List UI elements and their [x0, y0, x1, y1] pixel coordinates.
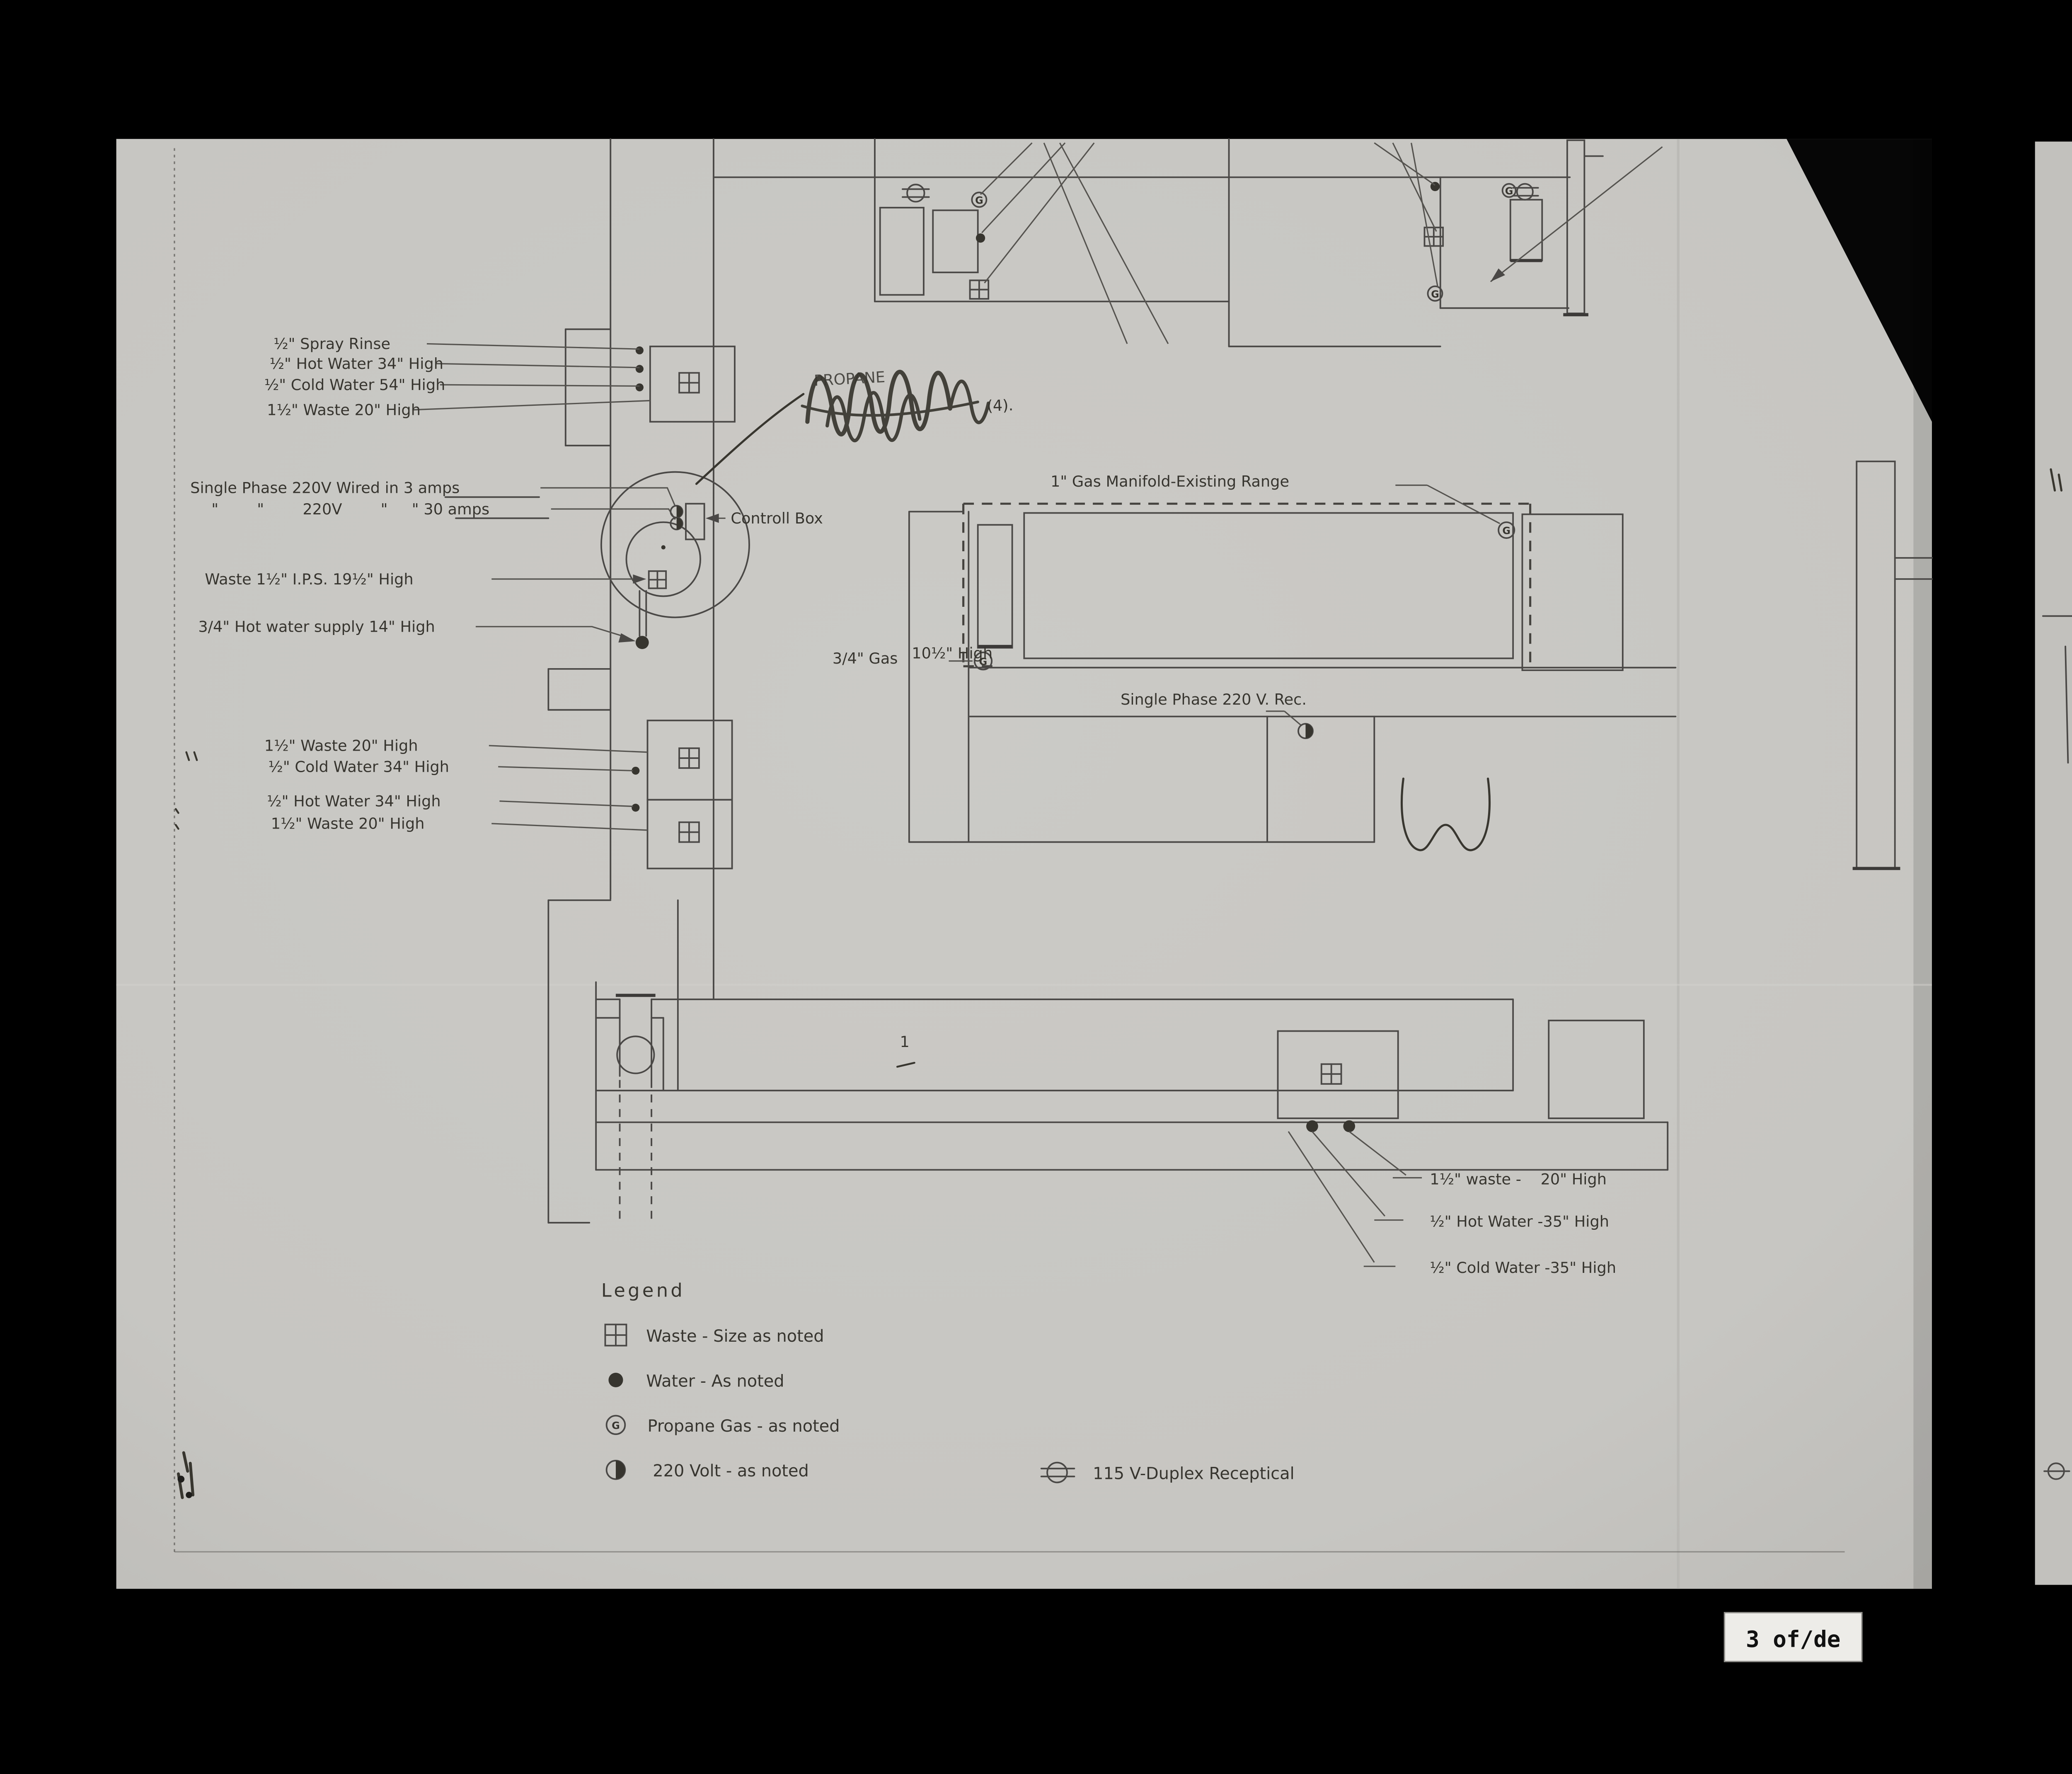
label-hot-water-bottom-right: ½" Hot Water -35" High	[1430, 1213, 1609, 1231]
label-gas-34: 3/4" Gas	[833, 649, 898, 667]
page-marker-text: 3 of/de	[1746, 1626, 1840, 1653]
gas-letter: G	[1502, 525, 1510, 537]
gas-letter: G	[1505, 185, 1513, 197]
label-single-phase-2: " " 220V " " 30 amps	[211, 500, 489, 518]
label-cold-water-34: ½" Cold Water 34" High	[268, 758, 449, 776]
water-icon	[636, 347, 644, 354]
label-waste-20-c: 1½" Waste 20" High	[271, 815, 425, 833]
label-single-phase-rec: Single Phase 220 V. Rec.	[1121, 691, 1307, 708]
legend-item-water: Water - As noted	[646, 1372, 784, 1391]
water-icon	[976, 233, 985, 242]
water-icon	[1343, 1120, 1355, 1132]
legend-item-duplex: 115 V-Duplex Receptical	[1093, 1464, 1295, 1483]
label-hot-water-supply: 3/4" Hot water supply 14" High	[198, 618, 435, 636]
scribble-suffix: (4).	[987, 396, 1014, 415]
label-hot-water-34-b: ½" Hot Water 34" High	[267, 792, 441, 810]
scanned-blueprint-page: G G G	[0, 0, 2072, 1774]
legend-item-waste: Waste - Size as noted	[646, 1327, 824, 1346]
gas-letter: G	[612, 1420, 620, 1431]
label-waste-ips: Waste 1½" I.P.S. 19½" High	[205, 570, 413, 588]
legend-item-propane: Propane Gas - as noted	[648, 1417, 840, 1436]
gas-letter: G	[975, 194, 983, 206]
blueprint-canvas: G G G	[0, 0, 2072, 1774]
label-gas-34-high: 10½" High	[912, 644, 992, 662]
water-icon	[632, 804, 639, 812]
label-gas-manifold: 1" Gas Manifold-Existing Range	[1051, 473, 1289, 490]
label-waste-bottom-right: 1½" waste - 20" High	[1430, 1170, 1607, 1188]
label-single-phase-1: Single Phase 220V Wired in 3 amps	[190, 479, 460, 497]
page-marker: 3 of/de	[1724, 1613, 1862, 1662]
label-cold-water-54: ½" Cold Water 54" High	[264, 376, 445, 394]
pencil-flag-mark: 1	[900, 1033, 910, 1051]
legend-item-220volt: 220 Volt - as noted	[653, 1461, 809, 1481]
label-waste-20: 1½" Waste 20" High	[267, 401, 421, 419]
water-icon	[636, 636, 649, 649]
gas-letter: G	[1431, 288, 1439, 300]
water-icon	[636, 365, 644, 373]
label-spray-rinse: ½" Spray Rinse	[274, 335, 390, 353]
label-controll-box: Controll Box	[731, 509, 823, 527]
label-waste-20-b: 1½" Waste 20" High	[264, 737, 418, 755]
water-icon	[608, 1373, 623, 1387]
water-icon	[1306, 1120, 1318, 1132]
label-hot-water-34: ½" Hot Water 34" High	[270, 355, 443, 373]
label-cold-water-bottom-right: ½" Cold Water -35" High	[1430, 1259, 1616, 1277]
water-icon	[636, 383, 644, 391]
legend-title: Legend	[601, 1280, 685, 1301]
adjacent-sheet-edge	[2035, 142, 2072, 1585]
